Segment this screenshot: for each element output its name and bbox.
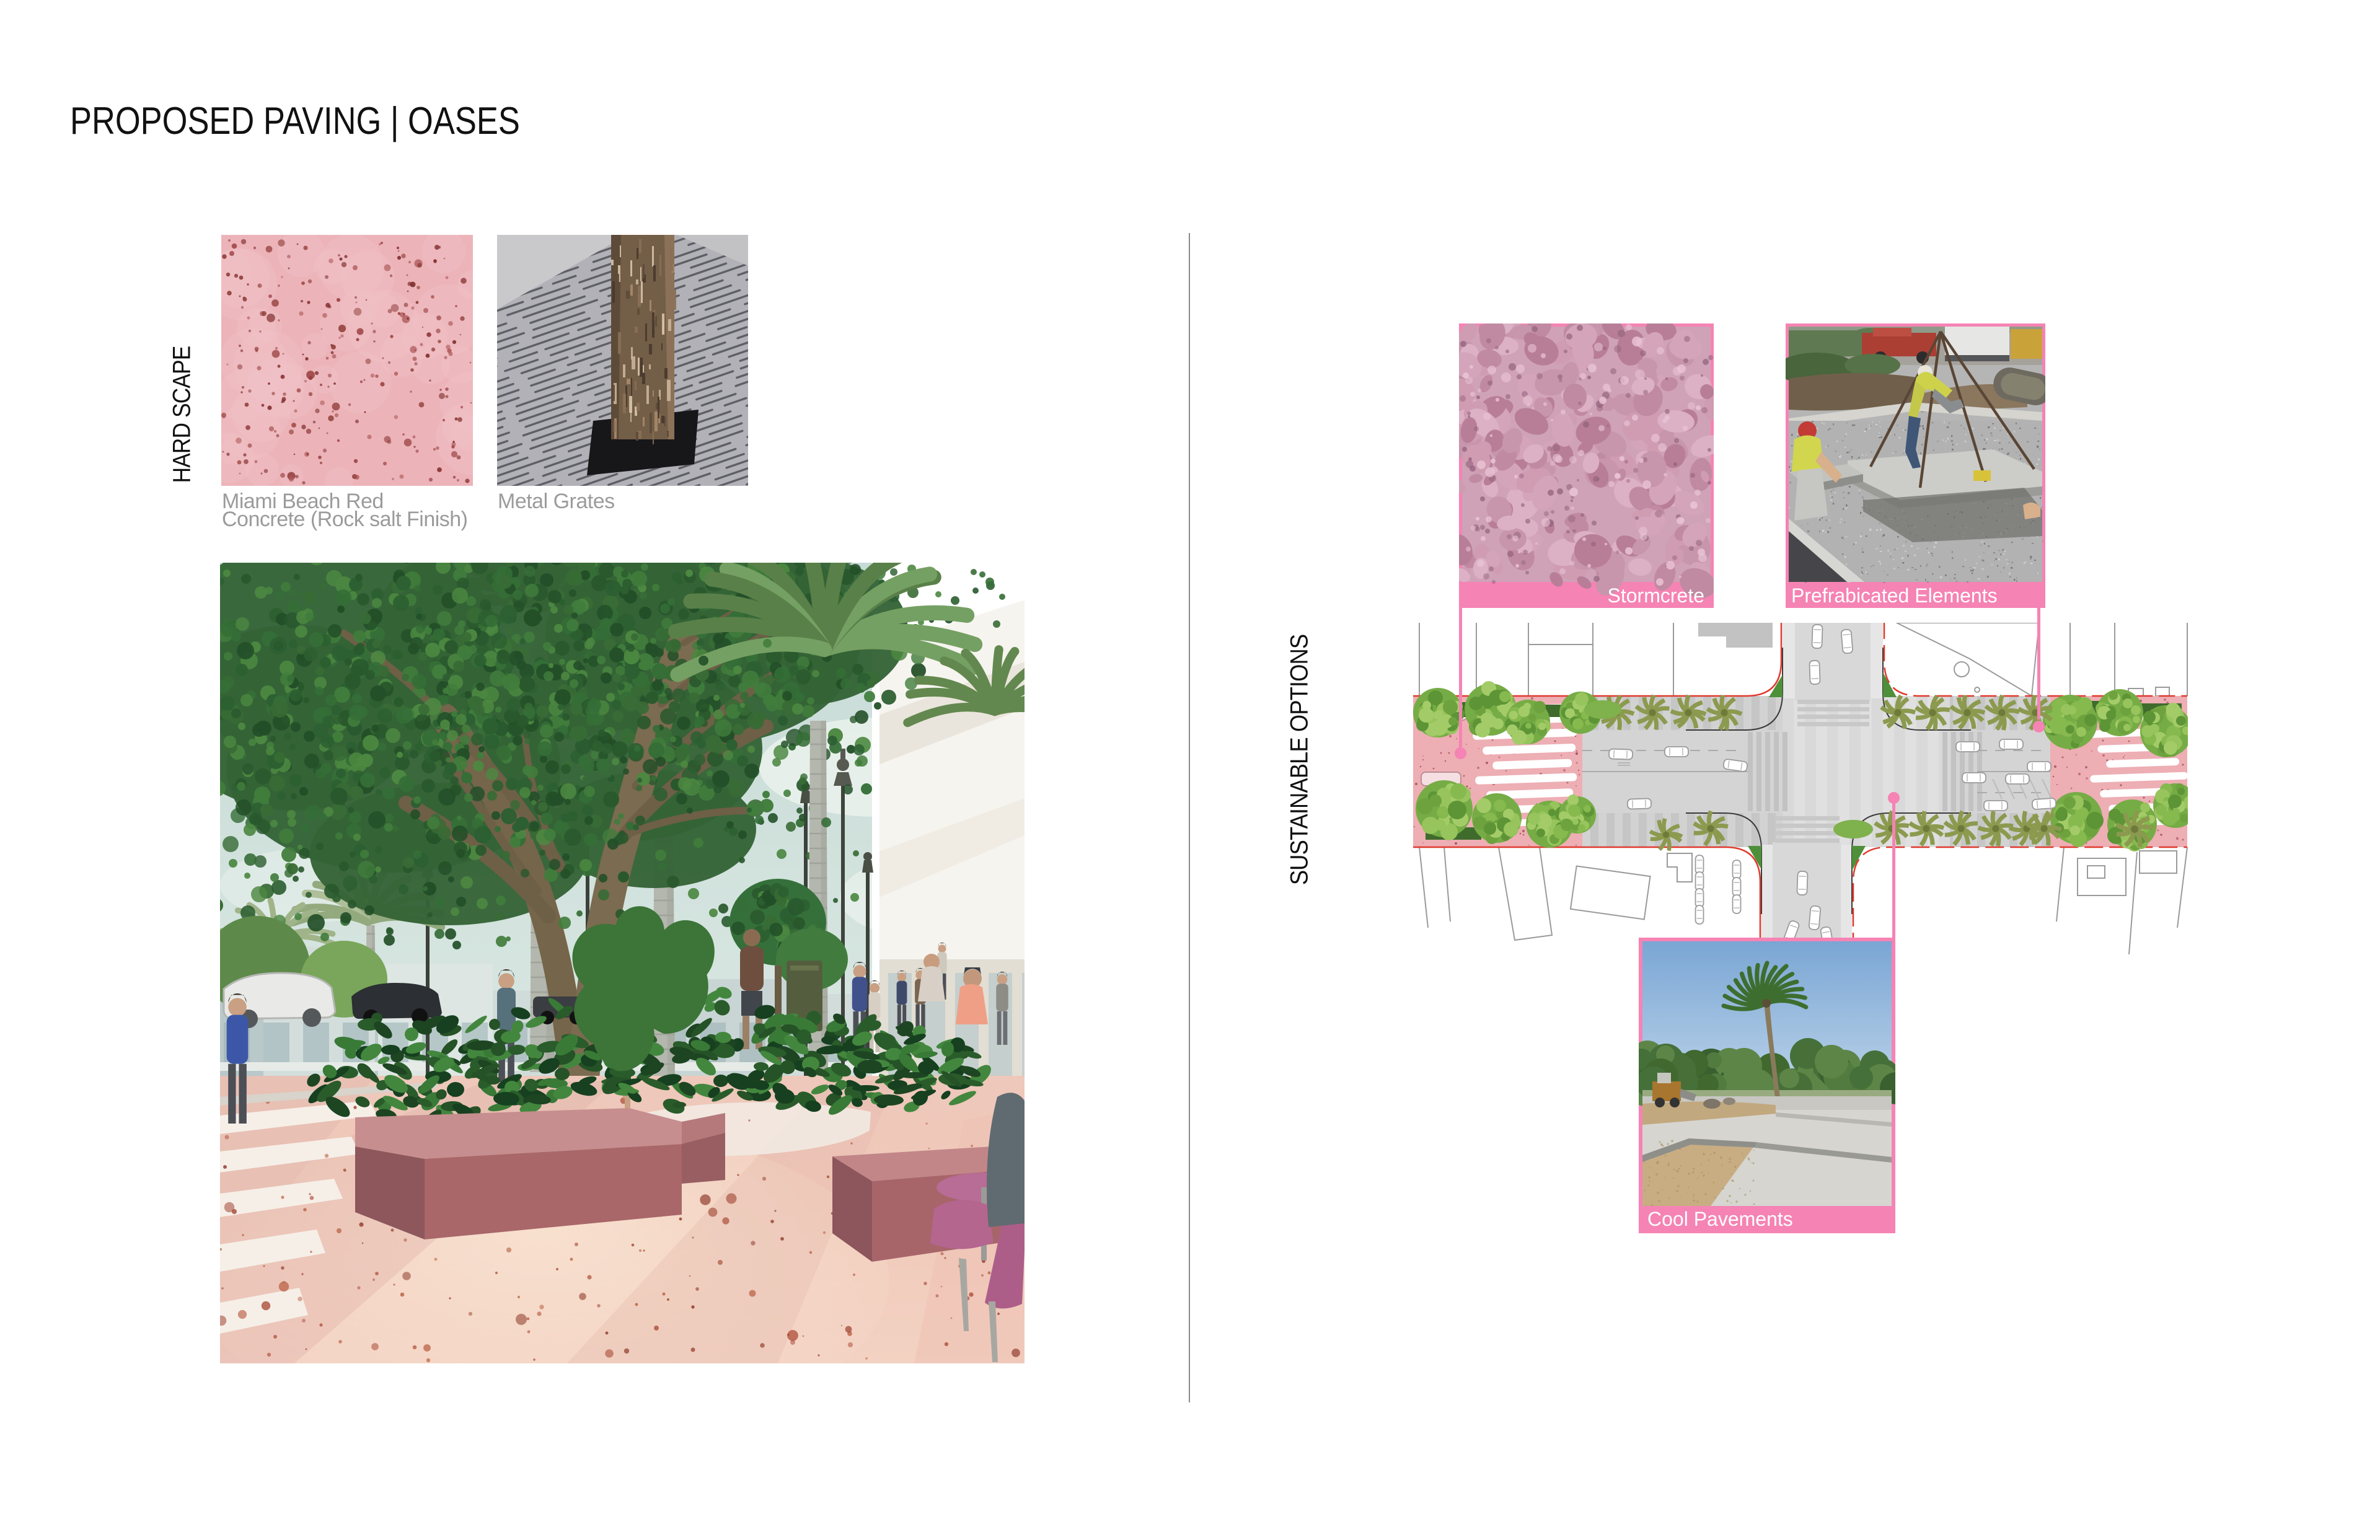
svg-text:Stormcrete: Stormcrete [1608, 584, 1704, 607]
svg-text:Prefrabicated Elements: Prefrabicated Elements [1791, 584, 1998, 607]
